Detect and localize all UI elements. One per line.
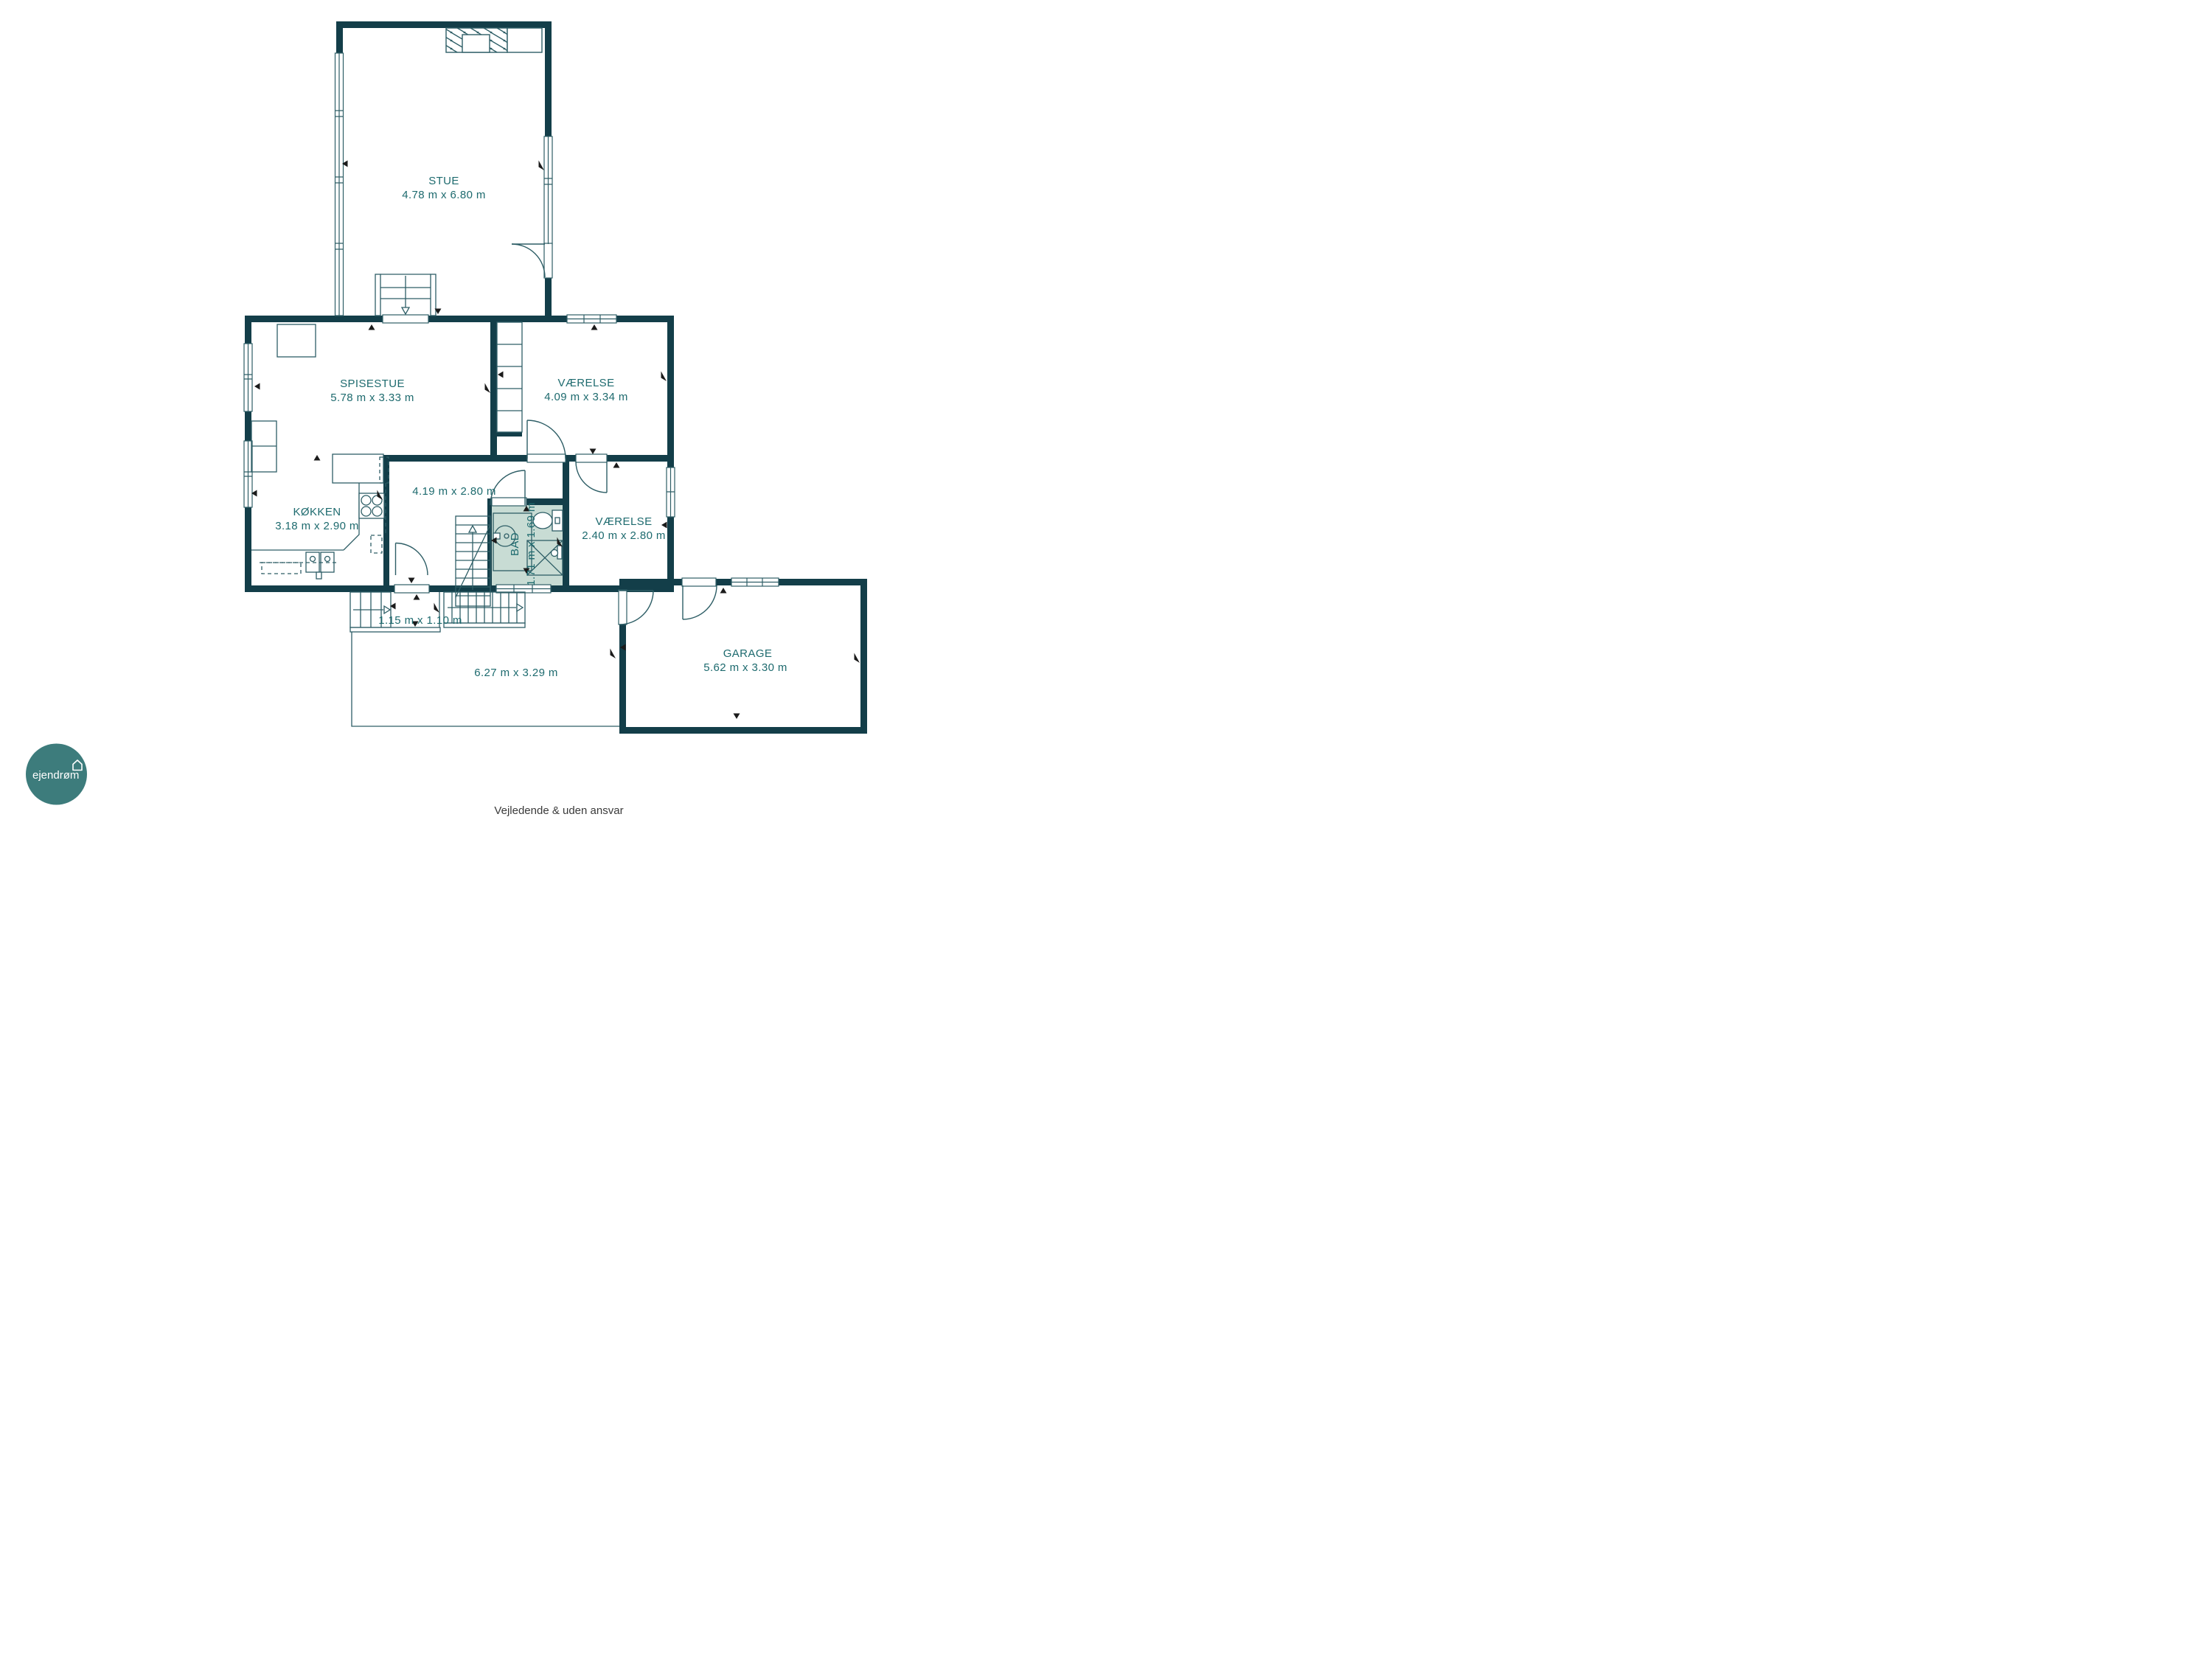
counter-top (333, 454, 383, 483)
door-arc (396, 543, 428, 576)
marker-right (434, 603, 440, 613)
sink-tap (316, 572, 321, 579)
wall (383, 462, 389, 585)
room-name-stue: STUE (428, 175, 459, 187)
wall (860, 579, 867, 734)
room-dims-spisestue: 5.78 m x 3.33 m (330, 392, 414, 404)
basement-stair (456, 516, 490, 606)
marker-up (314, 455, 321, 461)
wall (428, 316, 568, 322)
footer-disclaimer: Vejledende & uden ansvar (494, 804, 623, 817)
door-arc (683, 585, 717, 619)
marker-right (485, 383, 491, 394)
marker-up (369, 324, 375, 330)
marker-down (408, 578, 415, 584)
marker-up (591, 324, 598, 330)
wall (619, 727, 867, 734)
marker-right (855, 653, 860, 664)
marker-down (590, 449, 597, 455)
door-threshold (492, 498, 526, 506)
room-name-vaerelse-syd: VÆRELSE (596, 515, 653, 528)
stair-rail (375, 274, 380, 316)
wall (383, 455, 527, 462)
room-repos: 1.15 m x 1.10 m (378, 614, 462, 627)
room-dims-repos: 1.15 m x 1.10 m (378, 614, 462, 627)
room-koekken: KØKKEN 3.18 m x 2.90 m (275, 506, 359, 532)
wall (778, 579, 867, 585)
door-threshold (527, 454, 566, 462)
wall (550, 585, 674, 592)
door-threshold (544, 243, 552, 278)
steps-stue-spisestue (375, 274, 436, 316)
room-dims-koekken: 3.18 m x 2.90 m (275, 520, 359, 532)
marker-right (611, 649, 616, 659)
door-threshold (682, 578, 716, 586)
room-vaerelse-syd: VÆRELSE 2.40 m x 2.80 m (582, 515, 666, 542)
wall (336, 28, 343, 53)
room-dims-terrasse: 6.27 m x 3.29 m (474, 667, 558, 679)
wall (487, 505, 492, 585)
room-gang: 4.19 m x 2.80 m (412, 485, 496, 498)
wall (619, 579, 683, 585)
room-spisestue: SPISESTUE 5.78 m x 3.33 m (330, 378, 414, 404)
floorplan-page: STUE 4.78 m x 6.80 m SPISESTUE 5.78 m x … (0, 0, 1106, 829)
stair-arrowhead (517, 604, 523, 611)
wall (545, 21, 552, 136)
room-name-koekken: KØKKEN (293, 506, 341, 518)
room-garage: GARAGE 5.62 m x 3.30 m (703, 647, 787, 674)
marker-right (539, 161, 545, 171)
wall (336, 21, 552, 28)
room-dims-bad: 1.71 m x 1.69 m (525, 502, 538, 586)
marker-up (613, 462, 620, 468)
wall (667, 316, 674, 468)
room-dims-gang: 4.19 m x 2.80 m (412, 485, 496, 498)
dishwasher-dashed (262, 563, 301, 574)
room-dims-garage: 5.62 m x 3.30 m (703, 661, 787, 674)
room-vaerelse-nord: VÆRELSE 4.09 m x 3.34 m (544, 377, 628, 403)
chimney (446, 28, 542, 52)
door-arc (512, 244, 545, 277)
wall (563, 455, 569, 585)
door-arc (527, 420, 566, 459)
marker-left (498, 372, 504, 378)
chimney-side-box (507, 28, 542, 52)
logo-wordmark: ejendrøm (32, 769, 79, 782)
wall (490, 432, 522, 437)
door-threshold (619, 590, 627, 625)
marker-left (254, 383, 260, 390)
room-dims-vaerelse-syd: 2.40 m x 2.80 m (582, 529, 666, 542)
marker-left (661, 522, 667, 529)
room-stue: STUE 4.78 m x 6.80 m (402, 175, 486, 201)
stair-arrowhead (384, 606, 390, 613)
door-threshold (576, 454, 607, 462)
wall (245, 316, 383, 322)
wall (607, 455, 674, 462)
stair-arrowhead (469, 526, 476, 532)
shower-head (552, 550, 558, 557)
stair-rail (431, 274, 436, 316)
stair-arrowhead (402, 307, 409, 314)
room-name-garage: GARAGE (723, 647, 773, 660)
wall (245, 411, 251, 441)
logo: ejendrøm (26, 744, 87, 805)
marker-up (720, 588, 727, 594)
landing-border (350, 627, 440, 632)
room-name-bad: BAD (509, 532, 521, 556)
wall (245, 507, 251, 592)
room-dims-stue: 4.78 m x 6.80 m (402, 189, 486, 201)
closet (277, 324, 316, 357)
wall (716, 579, 732, 585)
door-threshold (394, 585, 429, 593)
terrace-outline (352, 632, 619, 726)
door-arc (576, 462, 607, 493)
door-threshold (383, 315, 428, 323)
wall (245, 585, 395, 592)
marker-right (661, 372, 667, 382)
marker-up (414, 594, 420, 600)
closet-column (497, 322, 522, 432)
wall (619, 625, 626, 734)
room-terrasse: 6.27 m x 3.29 m (474, 667, 558, 679)
room-name-spisestue: SPISESTUE (340, 378, 405, 390)
cabinet-dashed (371, 535, 382, 553)
room-name-vaerelse-nord: VÆRELSE (558, 377, 615, 389)
toilet-tank (552, 510, 563, 531)
wall (245, 322, 251, 344)
marker-down (734, 714, 740, 720)
wall (616, 316, 674, 322)
room-dims-vaerelse-nord: 4.09 m x 3.34 m (544, 391, 628, 403)
floor-plan: STUE 4.78 m x 6.80 m SPISESTUE 5.78 m x … (0, 0, 1106, 829)
chimney-core (462, 35, 490, 52)
closet-dividers (497, 344, 522, 411)
